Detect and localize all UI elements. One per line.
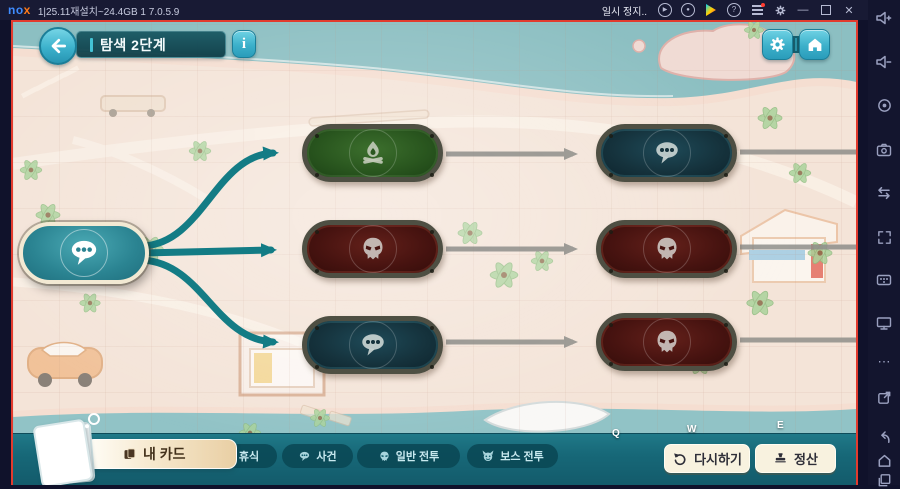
map-node-normal-battle[interactable] (302, 220, 443, 278)
gear-icon (768, 35, 787, 54)
node-rivets (609, 323, 613, 327)
node-icon-ring (349, 225, 397, 273)
map-node-start-event[interactable] (19, 222, 149, 284)
home-icon (806, 36, 824, 54)
stage-title: 탐색 2단계 (100, 35, 166, 55)
boss-icon (481, 449, 495, 463)
settings-button[interactable] (762, 29, 793, 60)
emulator-side-toolbar: ⋯ (868, 0, 900, 485)
nav-home-icon[interactable] (875, 451, 893, 469)
node-icon-ring (349, 321, 397, 369)
pause-status-text: 일시 정지.. (602, 3, 647, 18)
legend-label: 보스 전투 (500, 448, 544, 464)
keymap-icon[interactable] (875, 271, 893, 289)
help-icon[interactable]: ? (727, 3, 741, 17)
active-paths (143, 153, 273, 342)
virtual-screen-icon[interactable] (875, 314, 893, 332)
undo-icon (672, 451, 688, 467)
node-rivets (609, 230, 613, 234)
settings-icon[interactable] (773, 3, 787, 17)
more-icon[interactable]: ⋯ (875, 353, 893, 371)
card-icon (122, 447, 137, 462)
map-node-normal-battle[interactable] (596, 220, 737, 278)
info-icon: i (242, 36, 246, 53)
volume-down-icon[interactable] (875, 53, 893, 71)
retry-button[interactable]: 다시하기 (664, 444, 750, 473)
fullscreen-icon[interactable] (875, 228, 893, 246)
stamp-icon (773, 451, 788, 466)
keymap-hint-e: E (777, 420, 784, 431)
keymap-hint-q: Q (612, 428, 620, 439)
close-icon[interactable]: ✕ (842, 3, 856, 17)
legend-boss-battle: 보스 전투 (467, 444, 558, 468)
minimize-icon[interactable]: — (796, 3, 810, 17)
swap-icon[interactable] (875, 184, 893, 202)
emulator-titlebar: nox 1|25.11재설치~24.4GB 1 7.0.5.9 일시 정지.. … (0, 0, 868, 20)
settle-button[interactable]: 정산 (755, 444, 836, 473)
map-node-rest[interactable] (302, 124, 443, 182)
maximize-icon[interactable] (819, 3, 833, 17)
skull-icon (652, 234, 682, 264)
record-circle-icon[interactable]: ● (681, 3, 695, 17)
settle-label: 정산 (794, 449, 818, 468)
node-icon-ring (643, 129, 691, 177)
back-button[interactable] (39, 27, 77, 65)
screenshot-icon[interactable] (875, 141, 893, 159)
nav-back-icon[interactable] (875, 428, 893, 446)
skull-icon (358, 234, 388, 264)
nav-recents-icon[interactable] (875, 471, 893, 489)
node-rivets (315, 326, 319, 330)
play-circle-icon[interactable]: ▶ (658, 3, 672, 17)
retry-label: 다시하기 (694, 449, 742, 468)
open-external-icon[interactable] (875, 388, 893, 406)
title-accent-bar (90, 38, 93, 52)
node-icon-ring (643, 225, 691, 273)
map-node-normal-battle[interactable] (596, 313, 737, 371)
nox-logo: nox (8, 3, 31, 17)
my-cards-label: 내 카드 (143, 444, 186, 464)
info-button[interactable]: i (232, 30, 256, 58)
card-front (32, 419, 93, 485)
screen-record-icon[interactable] (875, 96, 893, 114)
menu-icon[interactable] (750, 3, 764, 17)
keymap-hint-w: W (687, 424, 696, 435)
legend-event: 사건 (282, 444, 353, 468)
node-rivets (609, 134, 613, 138)
map-node-event[interactable] (596, 124, 737, 182)
legend-label: 사건 (316, 448, 336, 464)
speech-bubble-icon (298, 450, 311, 463)
card-deck-art[interactable] (30, 416, 111, 485)
node-icon-ring (60, 229, 108, 277)
stage-title-banner: 탐색 2단계 (76, 31, 226, 58)
node-rivets (315, 230, 319, 234)
skull-icon (652, 327, 682, 357)
speech-bubble-icon (67, 236, 101, 270)
node-icon-ring (643, 318, 691, 366)
game-viewport: 탐색 2단계 i Q W E 휴식 사건 일반 전투 보스 전투 다시하기 (11, 20, 858, 485)
home-button[interactable] (799, 29, 830, 60)
node-icon-ring (349, 129, 397, 177)
speech-bubble-icon (652, 138, 682, 168)
google-play-icon[interactable] (704, 3, 718, 17)
legend-label: 휴식 (239, 448, 259, 464)
node-rivets (315, 134, 319, 138)
map-node-event[interactable] (302, 316, 443, 374)
legend-label: 일반 전투 (396, 448, 440, 464)
campfire-icon (358, 138, 388, 168)
skull-icon (378, 450, 391, 463)
legend-normal-battle: 일반 전투 (357, 444, 460, 468)
volume-up-icon[interactable] (875, 9, 893, 27)
window-title: 1|25.11재설치~24.4GB 1 7.0.5.9 (38, 3, 180, 18)
back-arrow-icon (48, 36, 68, 56)
speech-bubble-icon (358, 330, 388, 360)
notification-dot (761, 3, 765, 7)
